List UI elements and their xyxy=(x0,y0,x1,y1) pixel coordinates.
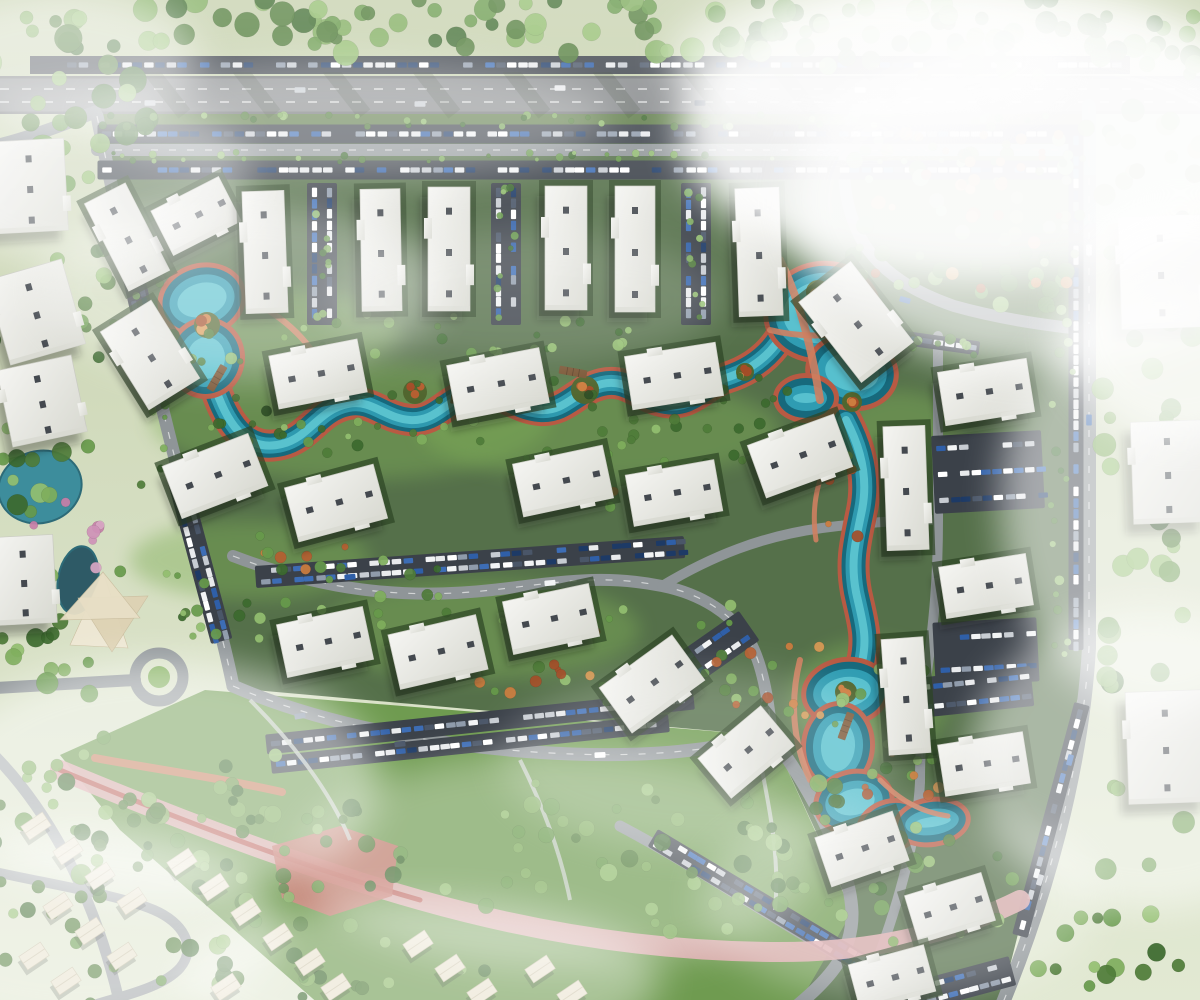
aerial-render-canvas xyxy=(0,0,1200,1000)
masterplan-aerial-screenshot xyxy=(0,0,1200,1000)
haze-overlay xyxy=(0,0,1200,1000)
